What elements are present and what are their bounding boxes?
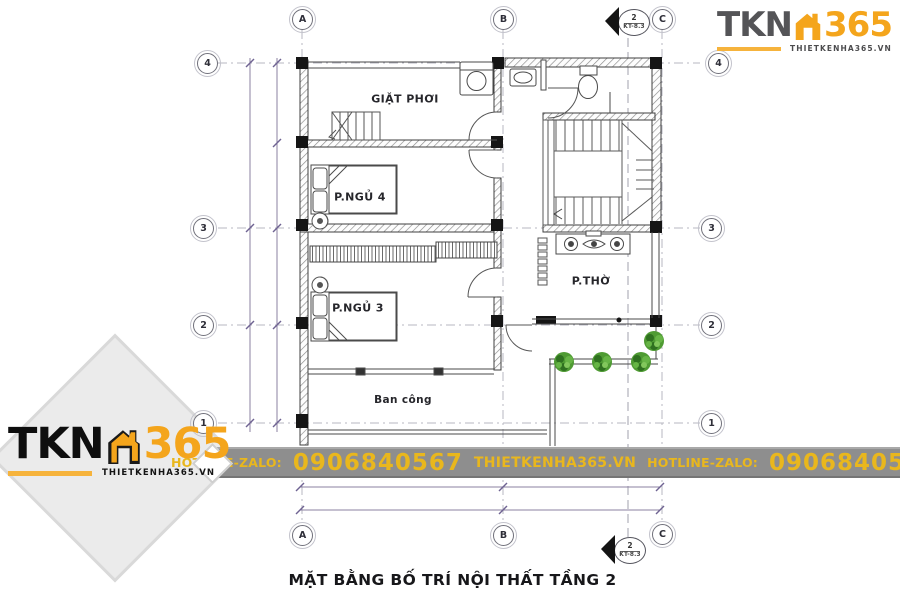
grid-bubble-top-c: C (652, 9, 673, 30)
washing-machine-icon (460, 62, 493, 95)
section-marker-bottom: 2 KT-8.3 (614, 537, 646, 564)
section-sheet: KT-8.3 (619, 552, 640, 559)
house-icon (106, 426, 142, 466)
wall-dot (617, 318, 622, 323)
banner-website: THIETKENHA365.VN (474, 455, 636, 471)
grid-bubble-bottom-c: C (652, 524, 673, 545)
staircase (543, 120, 654, 225)
hotline-banner: HOTLINE-ZALO: 0906840567 THIETKENHA365.V… (210, 447, 900, 478)
section-arrow-icon (605, 7, 619, 36)
grid-bubble-right-2: 2 (701, 315, 722, 336)
grid-bubble-left-3: 3 (193, 218, 214, 239)
floorplan-drawing (0, 0, 900, 603)
grid-bubble-top-a: A (292, 9, 313, 30)
plan-caption: MẶT BẰNG BỐ TRÍ NỘI THẤT TẦNG 2 (200, 571, 705, 589)
bathroom-fixtures (510, 60, 610, 113)
toilet-tank-icon (580, 66, 597, 75)
section-number: 2 (620, 542, 639, 552)
room-label-balcony: Ban công (374, 394, 432, 406)
grid-bubble-top-b: B (493, 9, 514, 30)
altar (556, 231, 630, 254)
bed-3 (311, 292, 397, 341)
grid-bubble-right-1: 1 (701, 413, 722, 434)
house-icon (794, 10, 822, 42)
fan-icon-bed3 (312, 277, 328, 293)
grid-bubble-right-3: 3 (701, 218, 722, 239)
section-marker-top: 2 KT-8.3 (618, 9, 650, 36)
section-arrow-icon (601, 535, 615, 564)
wardrobe (310, 242, 497, 262)
brand-logo-watermark: TKN 365 THIETKENHA365.VN (8, 423, 230, 478)
plants (554, 331, 664, 372)
grid-bubble-left-2: 2 (193, 315, 214, 336)
brand-365: 365 (824, 8, 892, 42)
doors (468, 88, 578, 351)
bed-4 (311, 165, 397, 214)
hotline-label-2: HOTLINE-ZALO: (647, 455, 758, 470)
room-label-bedroom4: P.NGỦ 4 (334, 191, 386, 204)
hotline-phone: 0906840567 (293, 450, 463, 476)
brand-tkn: TKN (8, 423, 104, 466)
grid-bubble-left-4: 4 (197, 53, 218, 74)
room-label-worship: P.THỜ (572, 275, 611, 288)
ladder-icon (329, 112, 380, 140)
page: A B C A B C 4 3 2 1 4 3 2 1 2 KT-8.3 2 K… (0, 0, 900, 603)
hotline-phone-2: 0906840567 (769, 450, 900, 476)
logo-underline (717, 47, 781, 51)
toilet-icon (579, 76, 598, 99)
fan-icon-bed4 (312, 213, 328, 229)
section-sheet: KT-8.3 (623, 24, 644, 31)
section-number: 2 (624, 14, 643, 24)
room-label-laundry: GIẶT PHƠI (371, 93, 439, 106)
grid-bubble-right-4: 4 (708, 53, 729, 74)
brand-domain: THIETKENHA365.VN (102, 468, 215, 478)
brand-domain: THIETKENHA365.VN (790, 44, 892, 53)
brand-365: 365 (144, 423, 231, 466)
altar-shelf (538, 238, 547, 285)
brand-logo-top: TKN 365 THIETKENHA365.VN (717, 8, 892, 53)
brand-tkn: TKN (717, 8, 792, 42)
logo-underline (8, 471, 92, 476)
grid-bubble-bottom-b: B (493, 525, 514, 546)
grid-bubble-bottom-a: A (292, 525, 313, 546)
room-label-bedroom3: P.NGỦ 3 (332, 302, 384, 315)
